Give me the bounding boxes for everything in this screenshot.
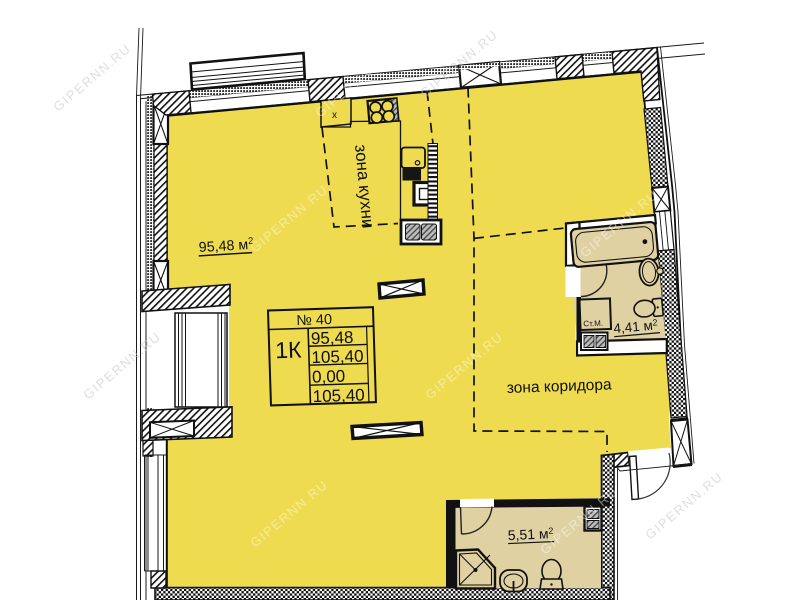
svg-text:95,48: 95,48 xyxy=(311,328,354,348)
svg-text:105,40: 105,40 xyxy=(311,347,364,368)
svg-text:1К: 1К xyxy=(275,336,303,363)
svg-text:0,00: 0,00 xyxy=(312,367,346,387)
svg-text:Ст.М.: Ст.М. xyxy=(583,319,603,329)
svg-text:x: x xyxy=(332,110,337,121)
svg-text:№ 40: № 40 xyxy=(296,312,332,329)
svg-text:105,40: 105,40 xyxy=(312,386,365,407)
